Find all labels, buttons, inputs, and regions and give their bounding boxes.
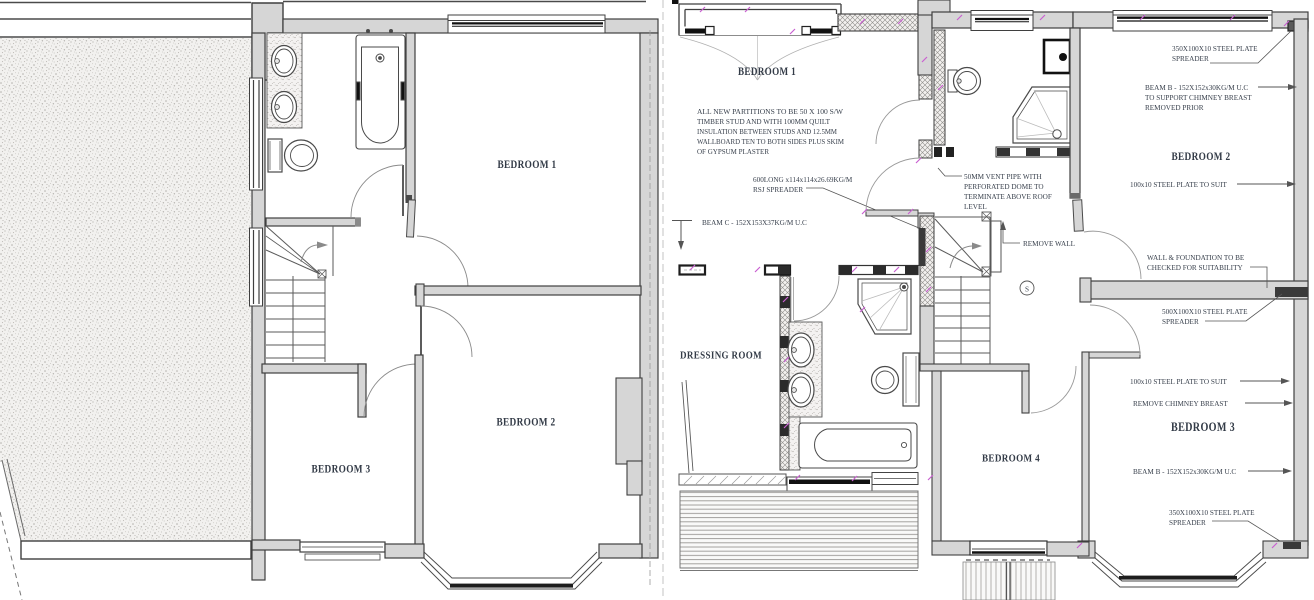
svg-text:SPREADER: SPREADER (1162, 318, 1199, 326)
svg-text:TIMBER STUD AND WITH 100MM QU: TIMBER STUD AND WITH 100MM QUILT (697, 118, 831, 126)
svg-text:100x10 STEEL PLATE TO SUIT: 100x10 STEEL PLATE TO SUIT (1130, 378, 1228, 386)
svg-text:BEDROOM 1: BEDROOM 1 (498, 159, 557, 171)
svg-text:PERFORATED DOME TO: PERFORATED DOME TO (964, 183, 1044, 191)
svg-text:REMOVE CHIMNEY BREAST: REMOVE CHIMNEY BREAST (1133, 400, 1228, 408)
svg-text:RSJ SPREADER: RSJ SPREADER (753, 186, 803, 194)
svg-text:SPREADER: SPREADER (1169, 519, 1206, 527)
svg-text:REMOVED PRIOR: REMOVED PRIOR (1145, 104, 1204, 112)
svg-text:BEAM B - 152X152x30KG/M U.C: BEAM B - 152X152x30KG/M U.C (1145, 84, 1248, 92)
svg-text:350X100X10 STEEL PLATE: 350X100X10 STEEL PLATE (1172, 45, 1258, 53)
svg-text:100x10 STEEL PLATE TO SUIT: 100x10 STEEL PLATE TO SUIT (1130, 181, 1228, 189)
svg-text:50MM VENT PIPE WITH: 50MM VENT PIPE WITH (964, 173, 1042, 181)
svg-text:500X100X10 STEEL PLATE: 500X100X10 STEEL PLATE (1162, 308, 1248, 316)
svg-text:BEDROOM 3: BEDROOM 3 (1171, 420, 1235, 434)
svg-text:BEDROOM 2: BEDROOM 2 (1172, 151, 1231, 163)
svg-text:WALLBOARD TEN TO BOTH SIDES PL: WALLBOARD TEN TO BOTH SIDES PLUS SKIM (697, 138, 845, 146)
svg-text:TO SUPPORT CHIMNEY BREAST: TO SUPPORT CHIMNEY BREAST (1145, 94, 1252, 102)
svg-text:OF GYPSUM PLASTER: OF GYPSUM PLASTER (697, 148, 769, 156)
svg-text:BEAM B - 152X152x30KG/M U.C: BEAM B - 152X152x30KG/M U.C (1133, 468, 1236, 476)
svg-text:INSULATION BETWEEN STUDS AND 1: INSULATION BETWEEN STUDS AND 12.5MM (697, 128, 838, 136)
svg-text:TERMINATE ABOVE ROOF: TERMINATE ABOVE ROOF (964, 193, 1052, 201)
svg-text:WALL & FOUNDATION TO BE: WALL & FOUNDATION TO BE (1147, 254, 1245, 262)
svg-text:CHECKED FOR SUITABILITY: CHECKED FOR SUITABILITY (1147, 264, 1243, 272)
svg-text:BEDROOM 2: BEDROOM 2 (497, 417, 556, 429)
svg-text:BEDROOM 1: BEDROOM 1 (738, 66, 796, 78)
svg-text:SPREADER: SPREADER (1172, 55, 1209, 63)
svg-text:350X100X10 STEEL PLATE: 350X100X10 STEEL PLATE (1169, 509, 1255, 517)
svg-text:ALL NEW PARTITIONS TO BE 50 X: ALL NEW PARTITIONS TO BE 50 X 100 S/W (697, 108, 843, 116)
svg-text:REMOVE WALL: REMOVE WALL (1023, 240, 1075, 248)
svg-text:BEAM C - 152X153X37KG/M U.C: BEAM C - 152X153X37KG/M U.C (702, 219, 807, 227)
svg-text:BEDROOM 3: BEDROOM 3 (312, 464, 371, 476)
svg-text:DRESSING ROOM: DRESSING ROOM (680, 351, 762, 362)
svg-text:LEVEL: LEVEL (964, 203, 987, 211)
svg-text:BEDROOM 4: BEDROOM 4 (982, 453, 1040, 465)
svg-text:S: S (1025, 286, 1029, 294)
svg-text:600LONG x114x114x26.69KG/M: 600LONG x114x114x26.69KG/M (753, 176, 853, 184)
